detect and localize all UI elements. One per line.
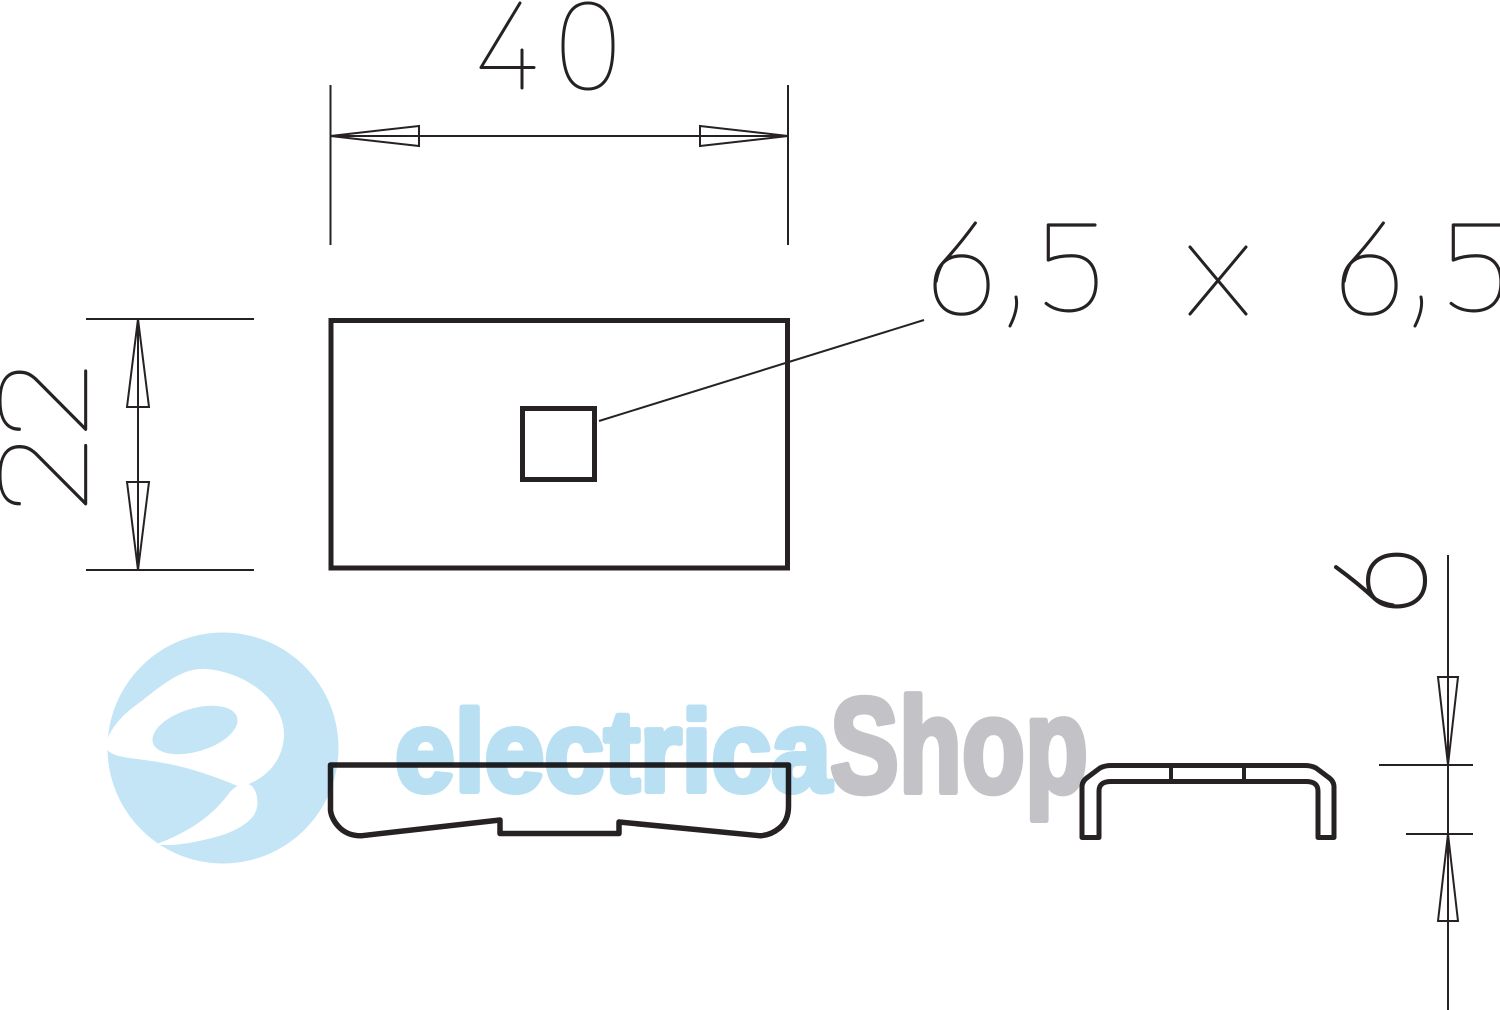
svg-text:Shop: Shop: [830, 670, 1088, 821]
svg-text:electrica: electrica: [395, 688, 832, 816]
